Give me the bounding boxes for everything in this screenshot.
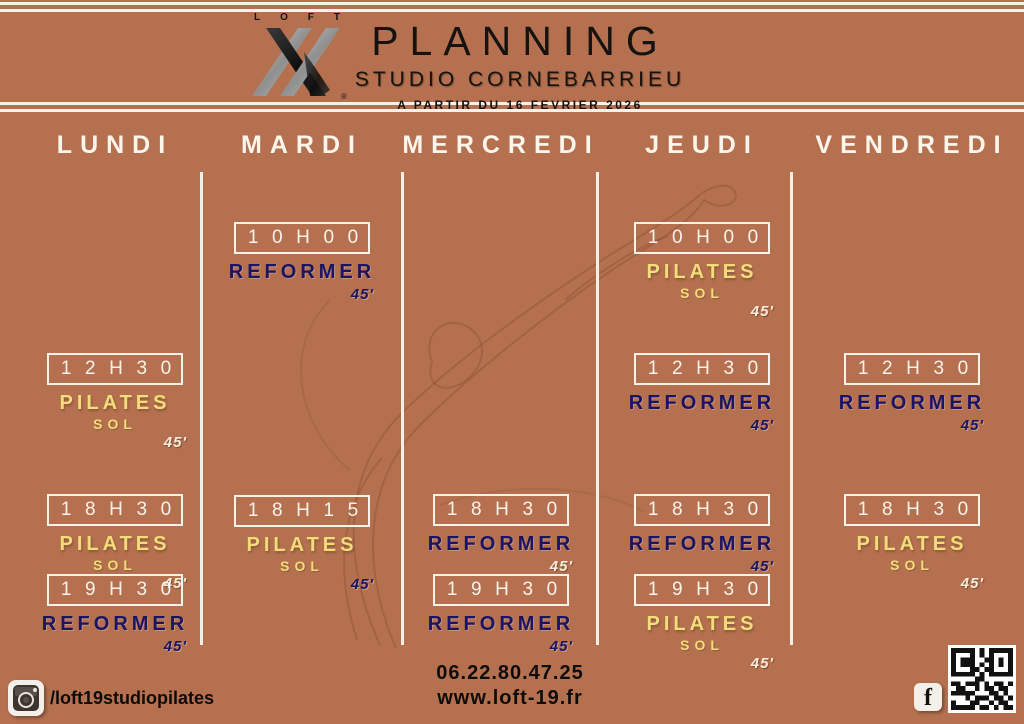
class-name: REFORMER	[411, 613, 591, 636]
facebook-icon: f	[914, 683, 942, 711]
time-badge: 1 8 H 3 0	[634, 494, 770, 526]
class-name: PILATES	[612, 261, 792, 284]
time-badge: 1 2 H 3 0	[47, 353, 183, 385]
class-duration: 45'	[612, 303, 792, 320]
time-badge: 1 8 H 3 0	[844, 494, 980, 526]
class-duration: 45'	[822, 417, 1002, 434]
class-name: PILATES	[212, 534, 392, 557]
logo-xx-mark: ®	[246, 24, 348, 100]
time-badge: 1 0 H 0 0	[634, 222, 770, 254]
class-duration: 45'	[212, 576, 392, 593]
time-badge: 1 0 H 0 0	[234, 222, 370, 254]
time-badge: 1 9 H 3 0	[433, 574, 569, 606]
time-badge: 1 2 H 3 0	[634, 353, 770, 385]
class-detail: SOL	[25, 416, 205, 432]
day-header-jeudi: JEUDI	[592, 131, 812, 160]
class-name: REFORMER	[822, 392, 1002, 415]
class-slot: 1 0 H 0 0PILATESSOL45'	[612, 222, 792, 320]
top-rule-2	[0, 9, 1024, 12]
day-header-vendredi: VENDREDI	[802, 131, 1022, 160]
time-badge: 1 8 H 3 0	[47, 494, 183, 526]
time-badge: 1 9 H 3 0	[634, 574, 770, 606]
class-slot: 1 2 H 3 0REFORMER45'	[822, 353, 1002, 434]
time-badge: 1 9 H 3 0	[47, 574, 183, 606]
class-name: PILATES	[25, 392, 205, 415]
class-slot: 1 9 H 3 0REFORMER45'	[411, 574, 591, 655]
phone-number: 06.22.80.47.25	[330, 662, 690, 685]
class-slot: 1 2 H 3 0REFORMER45'	[612, 353, 792, 434]
class-slot: 1 8 H 1 5PILATESSOL45'	[212, 495, 392, 593]
column-divider-3	[596, 172, 599, 645]
time-badge: 1 8 H 1 5	[234, 495, 370, 527]
column-divider-2	[401, 172, 404, 645]
class-name: REFORMER	[612, 392, 792, 415]
instagram-icon	[8, 680, 44, 716]
class-detail: SOL	[822, 557, 1002, 573]
class-duration: 45'	[612, 417, 792, 434]
day-header-mercredi: MERCREDI	[391, 131, 611, 160]
class-duration: 45'	[212, 286, 392, 303]
class-slot: 1 8 H 3 0REFORMER45'	[612, 494, 792, 575]
class-slot: 1 8 H 3 0REFORMER45'	[411, 494, 591, 575]
top-rule-1	[0, 2, 1024, 5]
class-detail: SOL	[212, 558, 392, 574]
logo-brand-text: LOFT	[254, 12, 340, 23]
class-name: REFORMER	[612, 533, 792, 556]
studio-logo: LOFT ®	[246, 12, 348, 100]
class-name: REFORMER	[411, 533, 591, 556]
poster-title: PLANNING	[340, 18, 700, 65]
class-duration: 45'	[411, 558, 591, 575]
class-slot: 1 9 H 3 0PILATESSOL45'	[612, 574, 792, 672]
instagram-handle: /loft19studiopilates	[50, 688, 214, 709]
class-slot: 1 8 H 3 0PILATESSOL45'	[822, 494, 1002, 592]
class-name: PILATES	[612, 613, 792, 636]
class-detail: SOL	[612, 285, 792, 301]
class-slot: 1 9 H 3 0REFORMER45'	[25, 574, 205, 655]
class-name: REFORMER	[25, 613, 205, 636]
class-duration: 45'	[822, 575, 1002, 592]
time-badge: 1 8 H 3 0	[433, 494, 569, 526]
class-detail: SOL	[25, 557, 205, 573]
effective-date: A PARTIR DU 16 FEVRIER 2026	[340, 98, 700, 112]
class-name: PILATES	[822, 533, 1002, 556]
class-detail: SOL	[612, 637, 792, 653]
qr-code	[948, 645, 1016, 713]
time-badge: 1 2 H 3 0	[844, 353, 980, 385]
class-duration: 45'	[411, 638, 591, 655]
class-slot: 1 2 H 3 0PILATESSOL45'	[25, 353, 205, 451]
class-duration: 45'	[612, 558, 792, 575]
class-duration: 45'	[25, 638, 205, 655]
planning-poster: LOFT ® PLANNING STUDIO CORNEBARRIEU A PA…	[0, 0, 1024, 724]
class-slot: 1 0 H 0 0REFORMER45'	[212, 222, 392, 303]
class-duration: 45'	[25, 434, 205, 451]
day-header-mardi: MARDI	[192, 131, 412, 160]
website-url: www.loft-19.fr	[330, 687, 690, 710]
class-name: REFORMER	[212, 261, 392, 284]
contact-block: 06.22.80.47.25 www.loft-19.fr	[330, 662, 690, 710]
poster-subtitle: STUDIO CORNEBARRIEU	[340, 68, 700, 92]
title-block: PLANNING STUDIO CORNEBARRIEU A PARTIR DU…	[340, 18, 700, 112]
class-name: PILATES	[25, 533, 205, 556]
